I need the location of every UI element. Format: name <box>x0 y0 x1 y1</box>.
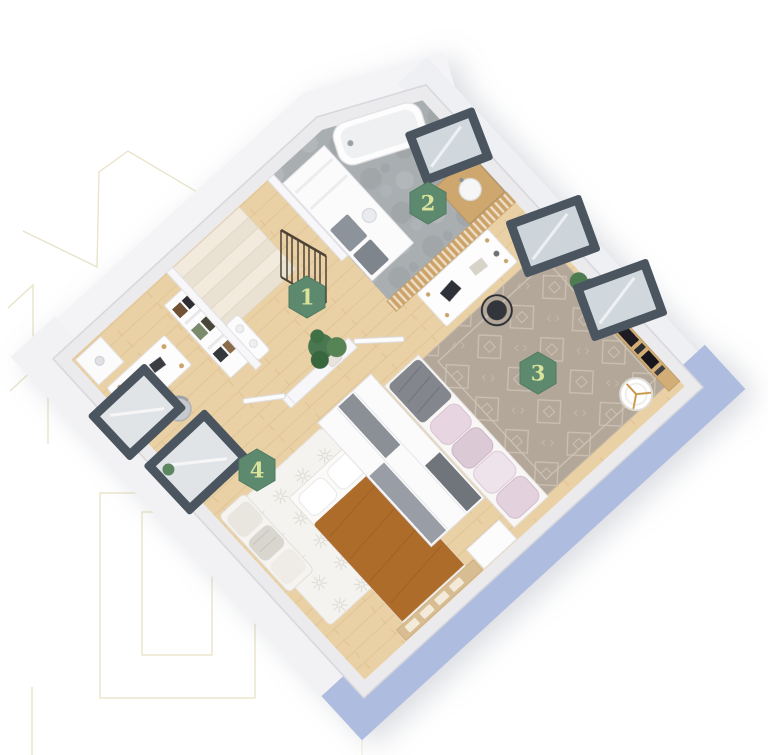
badge-number: 4 <box>250 458 265 483</box>
badge-number: 3 <box>531 361 546 386</box>
floor-plan-page: 1 2 3 4 <box>0 0 768 755</box>
badge-number: 1 <box>300 285 315 310</box>
floor-plan-render: 1 2 3 4 <box>0 0 768 755</box>
badge-number: 2 <box>421 191 436 216</box>
